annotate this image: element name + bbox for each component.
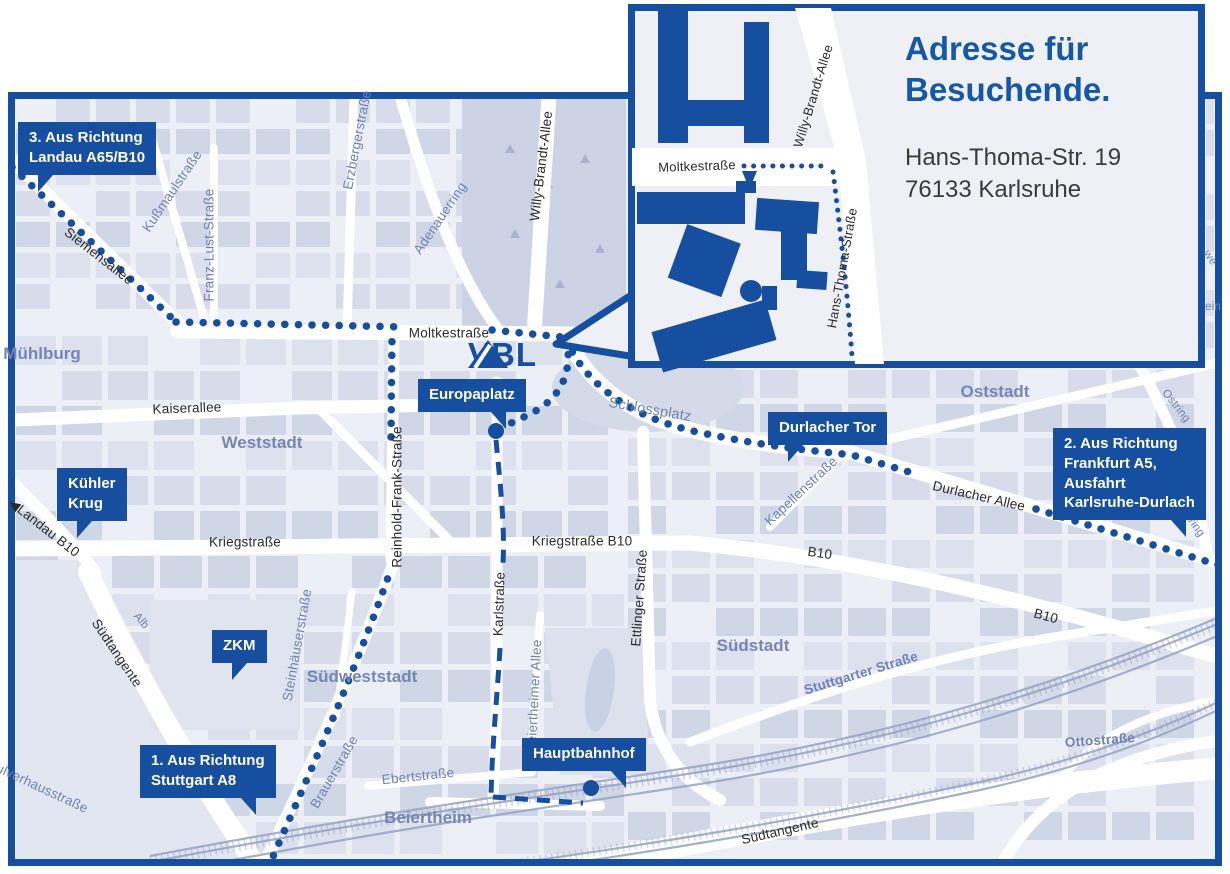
inset-detail-map bbox=[632, 8, 1202, 373]
europaplatz-marker bbox=[488, 423, 504, 439]
zkm-area bbox=[150, 600, 300, 730]
hauptbahnhof-marker bbox=[583, 780, 599, 796]
karlsruhe-map-page: VBL SiemensalleeKußmaulstraßeFranz-Lust-… bbox=[0, 0, 1230, 874]
vbl-logo: VBL bbox=[466, 338, 537, 371]
map-canvas bbox=[0, 0, 1230, 874]
vbl-triangle-icon bbox=[466, 338, 510, 370]
